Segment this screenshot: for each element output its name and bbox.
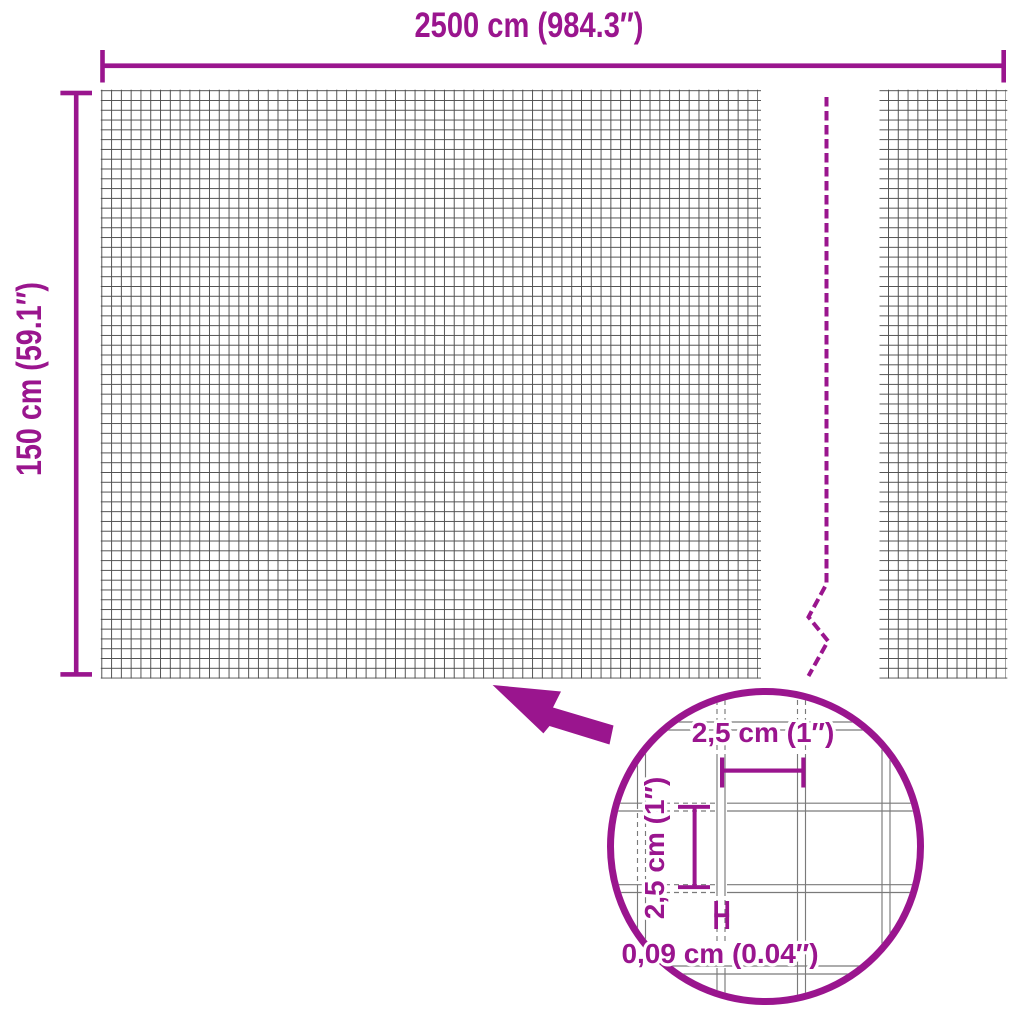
svg-text:150 cm (59.1″): 150 cm (59.1″) bbox=[10, 282, 49, 476]
svg-text:0,09 cm (0.04″): 0,09 cm (0.04″) bbox=[621, 938, 818, 969]
svg-text:2500 cm (984.3″): 2500 cm (984.3″) bbox=[415, 6, 644, 45]
svg-text:2,5 cm (1″): 2,5 cm (1″) bbox=[639, 777, 670, 920]
svg-text:2,5 cm (1″): 2,5 cm (1″) bbox=[692, 717, 835, 748]
